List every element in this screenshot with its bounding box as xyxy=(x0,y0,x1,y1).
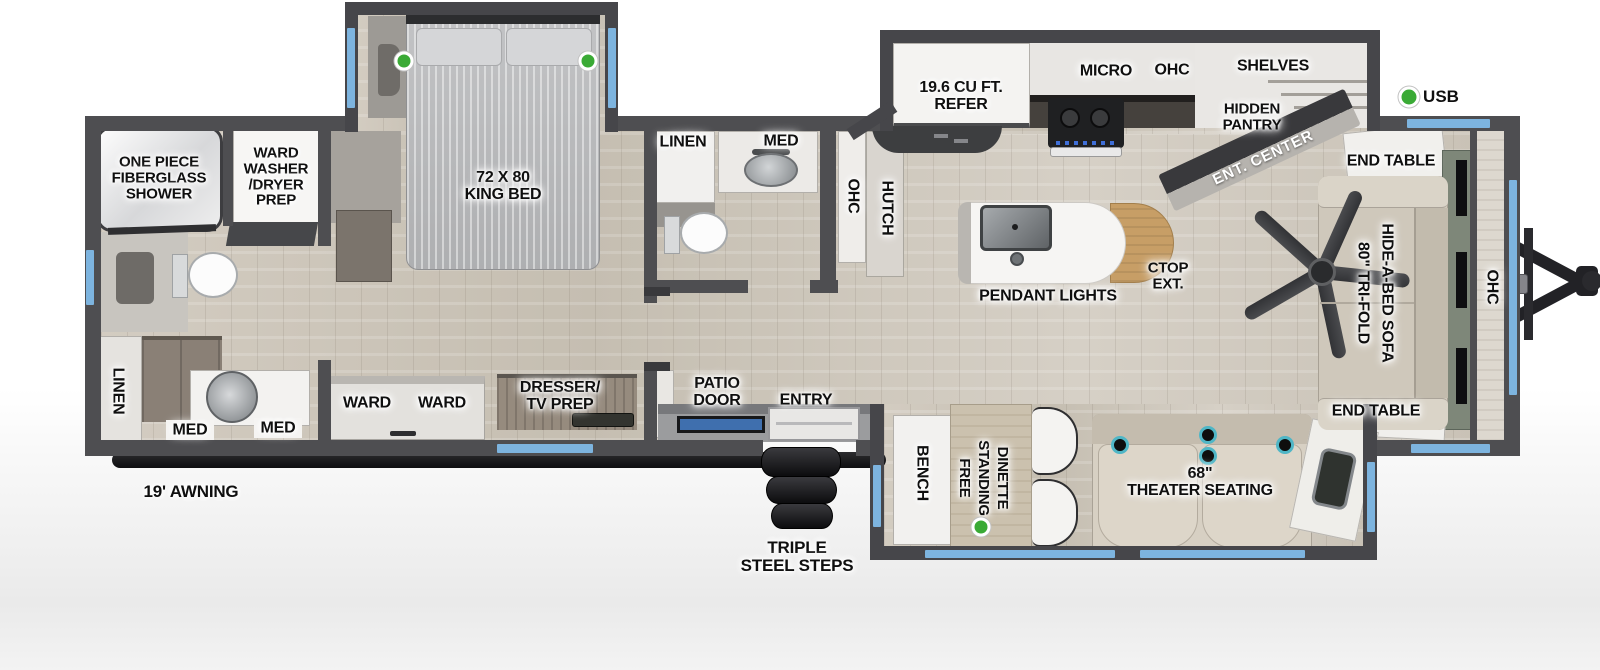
wall-bedroom-hall-lower xyxy=(644,365,657,442)
shelf-step-1 xyxy=(1268,80,1367,83)
bottom-wall-rear xyxy=(85,440,763,456)
cooktop-burner-right xyxy=(1090,108,1110,128)
tv-prep-plate xyxy=(572,413,634,427)
entry-step-line xyxy=(776,422,852,425)
floorplan-canvas: 19' AWNING ONE PIECE FIBERGLASS SHOWER W… xyxy=(0,0,1600,670)
wall-rearbath-bedroom-upper xyxy=(318,126,331,246)
rear-med-strip-1 xyxy=(166,420,214,440)
midbath-toilet-tank xyxy=(664,216,680,254)
oven-front xyxy=(1050,147,1122,157)
sofa-slat-3 xyxy=(1456,348,1467,404)
dinette-slide-window-bottom-2 xyxy=(1140,550,1305,558)
midbath-ohc-cabinet xyxy=(838,131,866,263)
refer-counter-handle-2 xyxy=(954,139,968,143)
king-bed-pillow-left xyxy=(416,28,502,66)
ward-cabinet-handle xyxy=(390,431,416,436)
window-bottom-dresser xyxy=(497,444,593,453)
kitchen-slide-wall-top xyxy=(880,30,1380,43)
refer-counter-handle-1 xyxy=(934,134,948,138)
entry-steps-2 xyxy=(766,476,837,504)
cupholder-center-1 xyxy=(1199,426,1217,444)
theater-seat-left xyxy=(1098,444,1198,548)
refrigerator xyxy=(893,43,1030,128)
ward-washer-cabinet xyxy=(233,126,319,224)
dinette-slide-window-right xyxy=(1367,462,1375,532)
kitchen-slide-wall-right xyxy=(1367,30,1380,131)
bedroom-open-door xyxy=(336,210,392,282)
hitch-coupler-head xyxy=(1582,271,1600,291)
hall-door-jamb-bottom xyxy=(644,362,670,371)
ohc-divider xyxy=(1470,131,1477,441)
entry-steps-1 xyxy=(761,447,841,477)
rear-toilet-bowl xyxy=(188,252,238,298)
cupholder-center-2 xyxy=(1199,447,1217,465)
window-left-rear xyxy=(86,250,94,305)
sofa-slat-1 xyxy=(1456,160,1467,216)
window-top-front xyxy=(1407,119,1490,128)
usb-dot-bed-left xyxy=(395,52,414,71)
cooktop-knobs xyxy=(1056,141,1118,145)
usb-dot-dinette xyxy=(972,518,991,537)
rear-linen-cabinet xyxy=(94,336,142,444)
wall-bedroom-hall-upper xyxy=(644,131,657,303)
rear-sink xyxy=(206,371,258,423)
wall-rearbath-bedroom-lower xyxy=(318,360,331,442)
steps-label: TRIPLE STEEL STEPS xyxy=(741,539,854,575)
sofa-slat-2 xyxy=(1456,252,1467,308)
shower xyxy=(96,126,223,232)
island-side-panel xyxy=(958,202,971,284)
dinette-slide-window-left xyxy=(873,465,881,527)
cooktop-burner-left xyxy=(1060,108,1080,128)
ward-washer-counter xyxy=(226,222,318,246)
midbath-bottom-wall-left xyxy=(657,280,748,293)
dinette-slide-window-bottom-1 xyxy=(925,550,1115,558)
rear-toilet-tank xyxy=(172,254,188,298)
patio-door xyxy=(677,416,765,433)
wall-shower-ward xyxy=(223,126,233,226)
front-ohc-cabinet xyxy=(1477,131,1505,441)
island-faucet xyxy=(1010,252,1024,266)
usb-legend-label: USB xyxy=(1423,88,1459,106)
fan-hub xyxy=(1308,258,1336,286)
sofa-back-cushions xyxy=(1414,208,1448,398)
usb-legend-dot xyxy=(1399,87,1420,108)
top-wall-rear xyxy=(85,116,357,131)
midbath-linen-cabinet xyxy=(650,131,715,203)
sofa-armrest-bottom xyxy=(1318,398,1448,430)
dinette-table xyxy=(950,404,1032,549)
midbath-toilet-bowl xyxy=(680,212,728,254)
bedroom-slide-wall-top xyxy=(345,2,618,15)
rear-med-strip-2 xyxy=(254,418,302,438)
midbath-sink xyxy=(744,153,798,187)
bench xyxy=(893,415,951,545)
rear-bath-vanity-inset xyxy=(116,252,154,304)
window-right-front xyxy=(1509,180,1517,395)
bedroom-slide-window-left xyxy=(347,28,355,108)
island-sink-drain xyxy=(1012,224,1018,230)
shelf-step-2 xyxy=(1281,93,1367,96)
bedroom-slide-window-right xyxy=(608,28,616,108)
hall-door-jamb-top xyxy=(644,287,670,296)
sofa-armrest-top xyxy=(1318,176,1448,208)
entry-steps-3 xyxy=(771,503,833,529)
midbath-right-wall xyxy=(820,131,836,293)
window-bottom-front xyxy=(1411,444,1490,453)
cupholder-left xyxy=(1111,436,1129,454)
bedroom-nightstand-inset xyxy=(378,44,400,96)
usb-dot-bed-right xyxy=(579,52,598,71)
sofa-seat-seam xyxy=(1320,302,1414,304)
cupholder-right xyxy=(1276,436,1294,454)
king-bed-headboard xyxy=(406,14,600,24)
awning-label: 19' AWNING xyxy=(144,483,239,501)
theater-seat-right xyxy=(1202,444,1302,548)
